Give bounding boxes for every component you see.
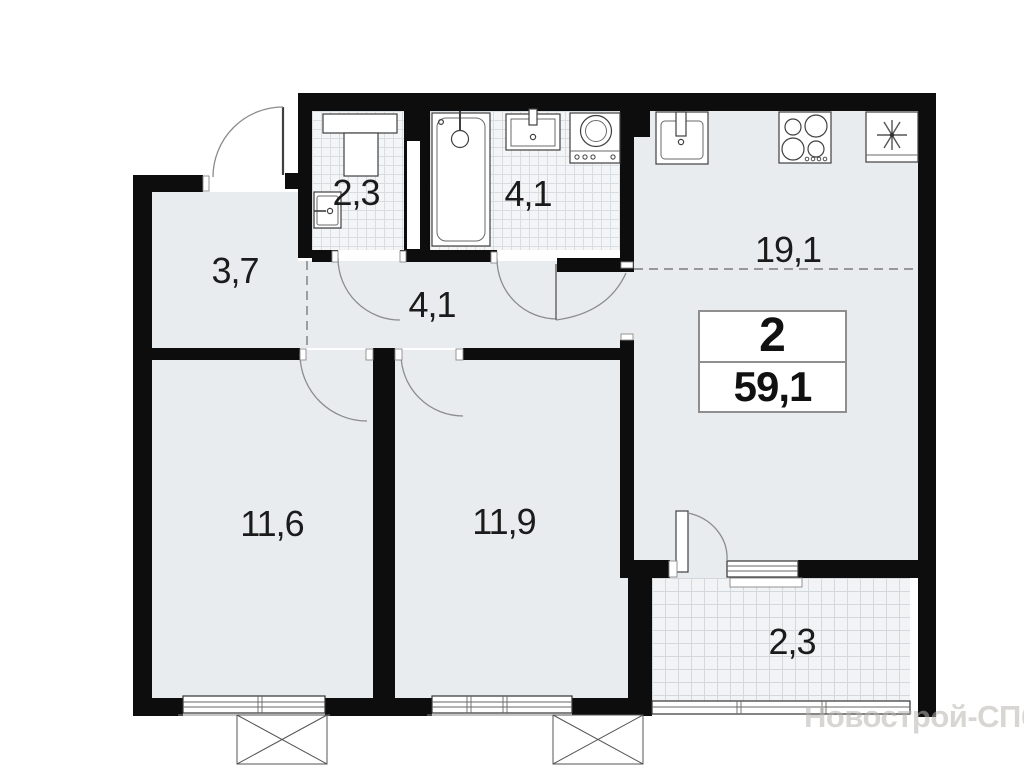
living-door-arc xyxy=(556,273,626,320)
entry-door-arc xyxy=(213,107,283,177)
washing-machine-icon xyxy=(570,113,620,163)
stove-burners-icon xyxy=(779,112,831,163)
kitchen-fixtures xyxy=(656,112,918,164)
room-label-corridor: 4,1 xyxy=(408,284,455,326)
unit-total-area: 59,1 xyxy=(700,361,845,412)
bathroom-door-arc xyxy=(497,259,557,319)
room-label-bedroom-2: 11,9 xyxy=(472,501,535,543)
window-living-balcony xyxy=(727,561,802,587)
unit-rooms-count: 2 xyxy=(700,312,845,361)
floor-plan: 3,7 2,3 4,1 4,1 19,1 11,6 11,9 2,3 2 59,… xyxy=(0,0,1024,768)
unit-summary-box: 2 59,1 xyxy=(698,310,847,413)
kitchen-sink-icon xyxy=(656,112,708,164)
ac-basket-x-icon-2 xyxy=(553,715,643,764)
ac-basket-x-icon-1 xyxy=(237,715,327,764)
bath-sink-icon xyxy=(506,109,560,150)
room-label-balcony: 2,3 xyxy=(768,621,815,663)
room-label-bedroom-1: 11,6 xyxy=(240,503,303,545)
fixtures-overlay xyxy=(0,0,1024,768)
bedroom1-door-arc xyxy=(300,354,367,421)
wc-door-arc xyxy=(338,258,400,320)
counter-icon xyxy=(323,114,397,133)
living-door xyxy=(556,264,626,320)
washer-box-icon xyxy=(344,133,378,176)
watermark-text: Новострой-СПб xyxy=(804,699,1024,735)
entry-door xyxy=(213,107,283,177)
window-bedroom1 xyxy=(178,696,330,715)
room-label-kitchen-living: 19,1 xyxy=(755,229,821,271)
room-label-entry-hall: 3,7 xyxy=(211,250,258,292)
ac-baskets xyxy=(237,715,643,764)
room-label-bathroom: 4,1 xyxy=(504,173,551,215)
balcony-door xyxy=(676,511,727,572)
window-bedroom2 xyxy=(427,696,577,715)
balcony-door-arc xyxy=(688,513,727,560)
room-label-wc: 2,3 xyxy=(332,172,379,214)
balcony-door-leaf xyxy=(676,511,688,572)
bedroom2-door-arc xyxy=(401,354,463,416)
bathtub-icon xyxy=(432,111,490,246)
fridge-asterisk-icon xyxy=(866,112,918,162)
